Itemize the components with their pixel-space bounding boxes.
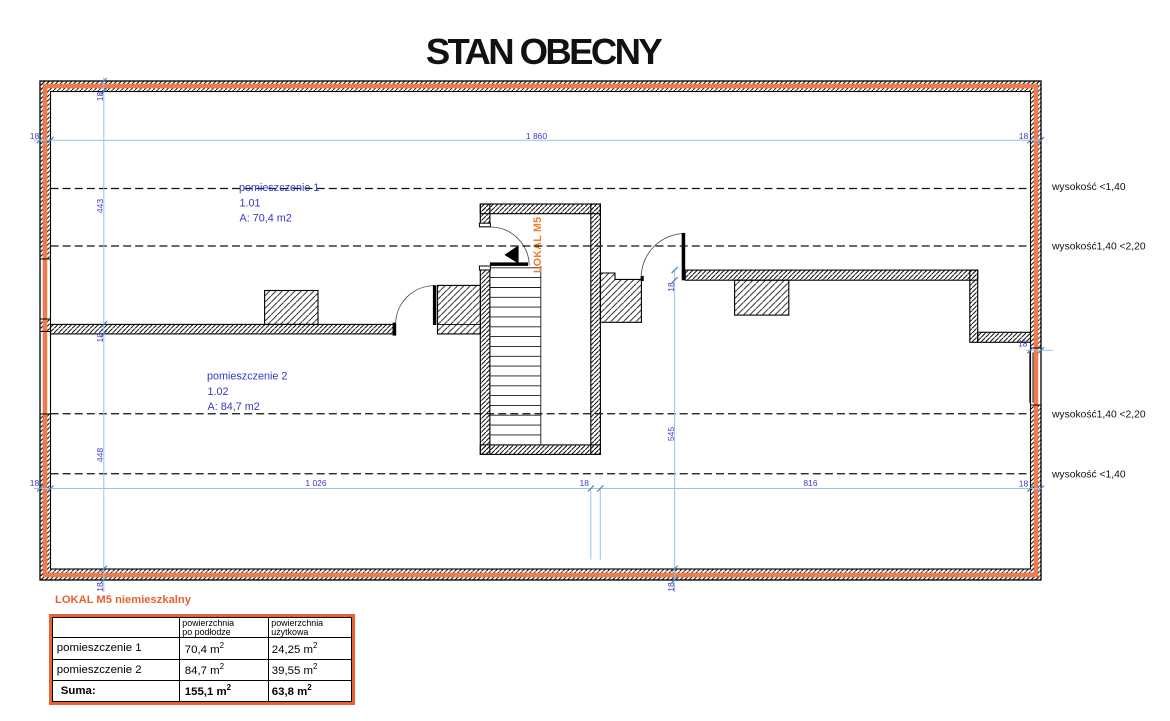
svg-text:pomieszczenie 1: pomieszczenie 1: [239, 182, 319, 194]
svg-text:wysokość <1,40: wysokość <1,40: [1051, 469, 1126, 480]
svg-text:18: 18: [95, 333, 105, 343]
svg-text:18: 18: [666, 282, 676, 292]
svg-text:816: 816: [803, 478, 817, 488]
svg-text:LOKAL M5: LOKAL M5: [532, 217, 544, 273]
svg-text:448: 448: [95, 448, 105, 462]
svg-text:wysokość <1,40: wysokość <1,40: [1051, 182, 1126, 193]
svg-text:18: 18: [1019, 131, 1029, 141]
svg-text:18: 18: [580, 478, 590, 488]
svg-text:18: 18: [666, 582, 676, 592]
svg-text:1.01: 1.01: [240, 198, 261, 210]
svg-text:wysokość1,40 <2,20: wysokość1,40 <2,20: [1051, 242, 1146, 253]
svg-text:18: 18: [1018, 339, 1028, 349]
svg-text:18: 18: [30, 131, 40, 141]
svg-text:A: 70,4 m2: A: 70,4 m2: [240, 212, 292, 224]
svg-text:18: 18: [95, 92, 105, 102]
svg-text:18: 18: [95, 582, 105, 592]
svg-text:443: 443: [95, 199, 105, 213]
svg-text:1 026: 1 026: [305, 478, 327, 488]
svg-text:wysokość1,40 <2,20: wysokość1,40 <2,20: [1051, 409, 1146, 420]
svg-text:pomieszczenie 2: pomieszczenie 2: [207, 371, 287, 383]
svg-text:STAN OBECNY: STAN OBECNY: [426, 31, 663, 72]
svg-text:1 860: 1 860: [526, 131, 548, 141]
svg-text:545: 545: [666, 427, 676, 441]
svg-text:1.02: 1.02: [208, 386, 229, 398]
svg-text:A: 84,7 m2: A: 84,7 m2: [208, 401, 260, 413]
svg-text:18: 18: [30, 478, 40, 488]
svg-text:18: 18: [1019, 479, 1029, 489]
